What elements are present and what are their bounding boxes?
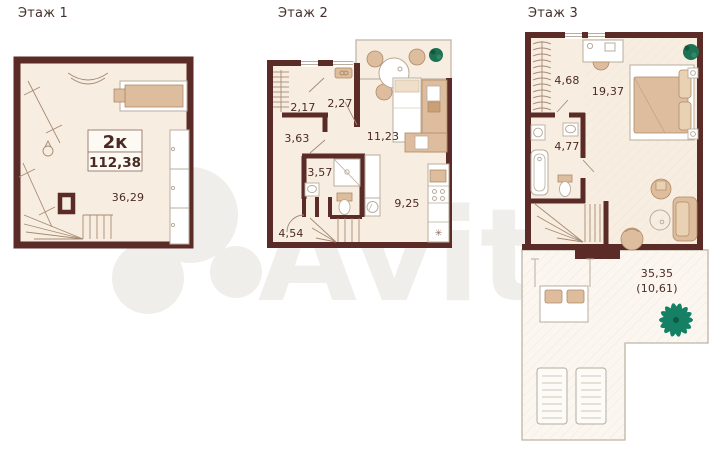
floor-2-plan: ✳ 2,17 2,27 3,63 11,23 3,57 9,25 4,54 (258, 36, 458, 258)
chair (567, 290, 584, 303)
unit-label-box: 2к 112,38 (88, 130, 142, 171)
washing-machine (531, 125, 545, 140)
unit-type-label: 2к (103, 132, 128, 153)
toilet (558, 175, 572, 197)
room-area-label: 4,54 (278, 227, 303, 240)
floor-1-plan: 2к 112,38 36,29 (8, 45, 208, 257)
room-area-label: 36,29 (112, 191, 145, 204)
sun-lounger (537, 368, 567, 424)
room-area-label: 2,27 (327, 97, 352, 110)
chair (545, 290, 562, 303)
room-area-label: 4,68 (554, 74, 579, 87)
floorplan-page: { "watermark": { "brand": "Avito" }, "co… (0, 0, 720, 470)
cutting-board (430, 170, 446, 182)
room-area-label: 2,17 (290, 101, 315, 114)
sun-lounger (576, 368, 606, 424)
plant (429, 48, 443, 62)
room-area-label: 3,57 (307, 166, 332, 179)
room-area-label: 11,23 (367, 130, 400, 143)
room-area-label: 4,77 (554, 140, 579, 153)
terrace-area-label: 35,35 (641, 267, 674, 280)
floor-3-title: Этаж 3 (528, 6, 578, 21)
pillow (679, 102, 691, 130)
bathtub (531, 150, 548, 195)
chair (409, 49, 425, 65)
fridge-icon: ✳ (435, 229, 443, 239)
washing-machine (365, 198, 380, 216)
room-area-label: 9,25 (394, 197, 419, 210)
terrace-area-reduced-label: (10,61) (636, 282, 677, 295)
plant (683, 44, 699, 60)
chair (367, 51, 383, 67)
floor-3-plan: 4,68 19,37 4,77 35,35 (10,61) (495, 28, 713, 452)
closet (170, 130, 189, 244)
room-area-label: 3,63 (284, 132, 309, 145)
watermark-circle (210, 246, 262, 298)
unit-total-area: 112,38 (89, 155, 141, 171)
double-bed (630, 65, 694, 140)
column (60, 195, 73, 212)
hanging-chair (621, 228, 643, 250)
sink (305, 183, 319, 196)
shelf (335, 68, 352, 78)
sink (563, 123, 578, 136)
floor-1-title: Этаж 1 (18, 6, 68, 21)
shower (334, 159, 360, 186)
bench-bed (114, 81, 187, 111)
armchair (673, 197, 697, 241)
wall-block (575, 244, 620, 259)
floor-2-title: Этаж 2 (278, 6, 328, 21)
room-area-label: 19,37 (592, 85, 625, 98)
round-chair (651, 179, 671, 199)
